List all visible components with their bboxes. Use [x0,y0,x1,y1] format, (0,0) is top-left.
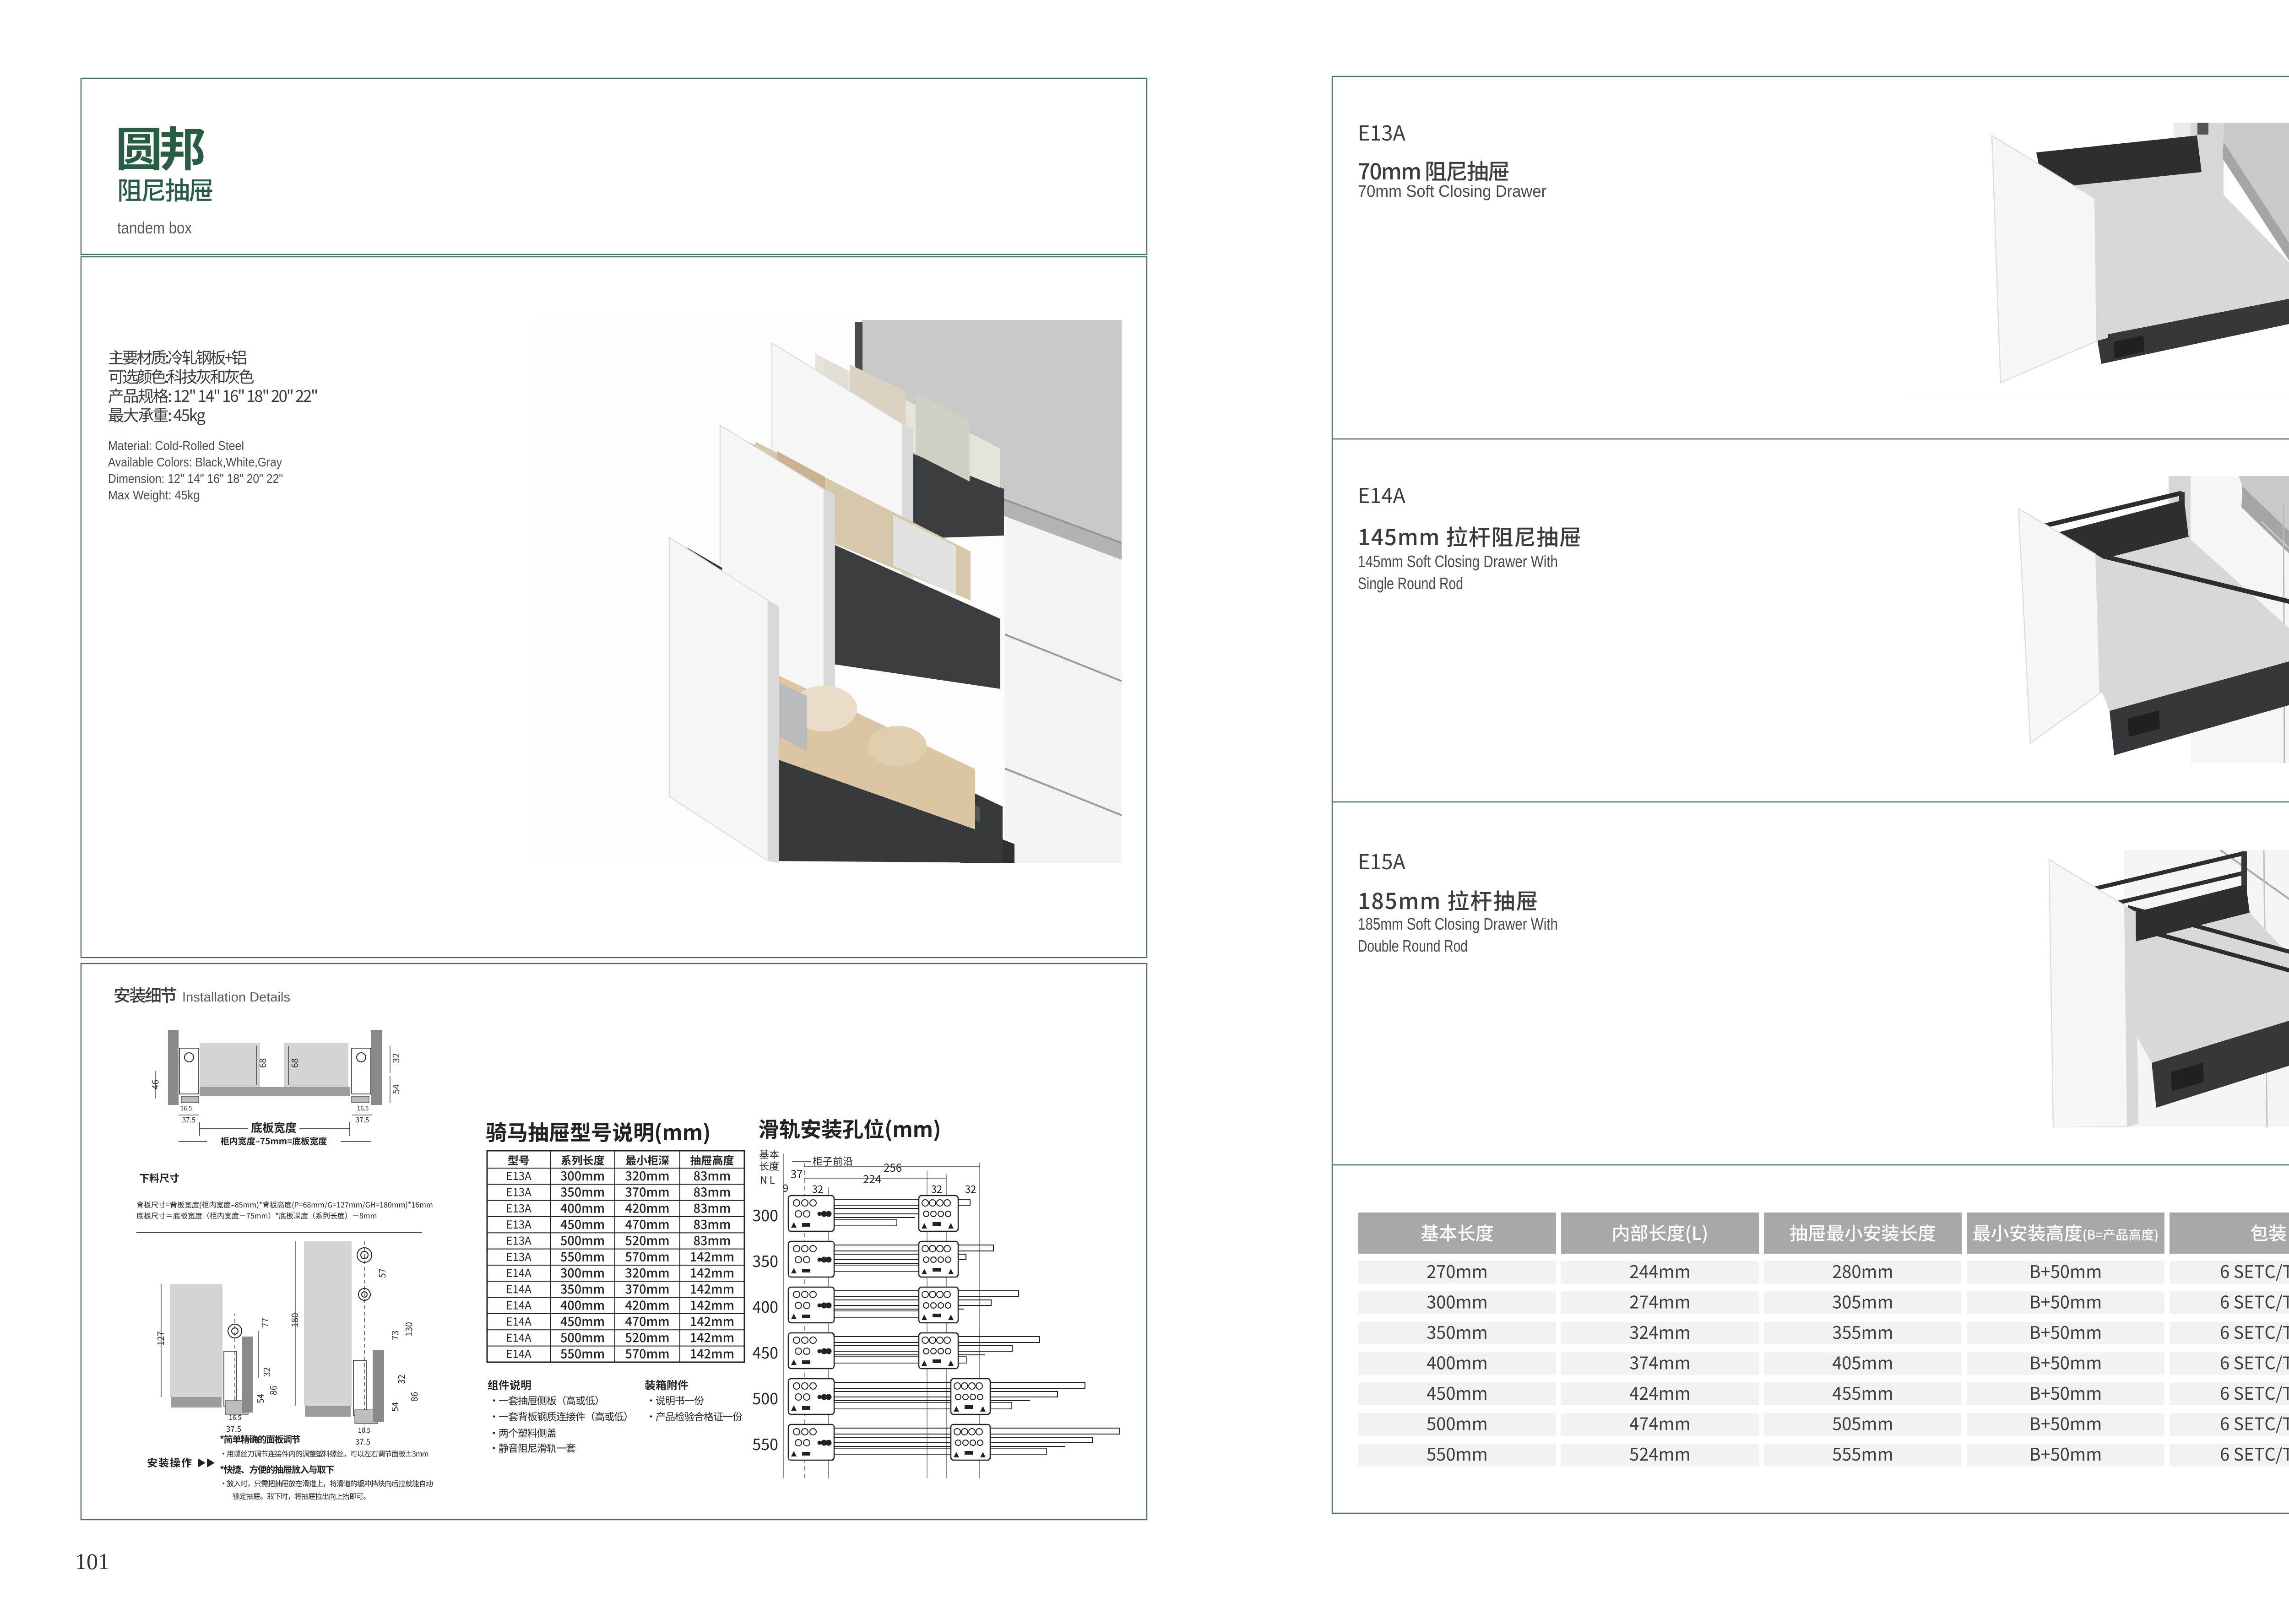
svg-text:Material: Cold-Rolled Steel: Material: Cold-Rolled Steel [108,438,244,453]
svg-text:Available Colors: Black,White,: Available Colors: Black,White,Gray [108,455,282,469]
svg-text:tandem box: tandem box [117,218,192,237]
svg-text:Double Round Rod: Double Round Rod [1358,937,1468,955]
svg-text:145mm Soft Closing Drawer With: 145mm Soft Closing Drawer With [1358,552,1558,571]
svg-text:185mm Soft Closing Drawer With: 185mm Soft Closing Drawer With [1358,915,1558,933]
svg-text:Installation Details: Installation Details [182,990,290,1005]
svg-text:Dimension: 12" 14" 16" 18" 20": Dimension: 12" 14" 16" 18" 20" 22" [108,471,283,486]
svg-text:Max Weight: 45kg: Max Weight: 45kg [108,488,200,502]
svg-text:Single Round Rod: Single Round Rod [1358,574,1463,593]
svg-text:70mm Soft Closing Drawer: 70mm Soft Closing Drawer [1358,182,1546,200]
svg-text:101: 101 [75,1548,109,1574]
